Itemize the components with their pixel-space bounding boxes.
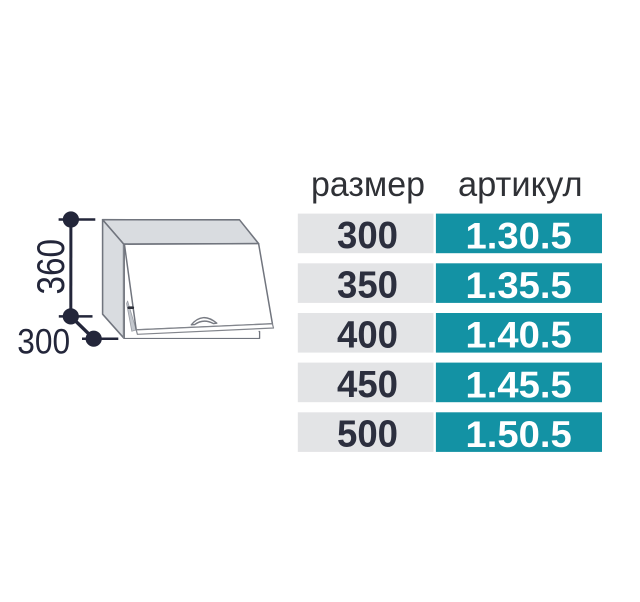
svg-text:1.45.5: 1.45.5: [466, 364, 572, 405]
svg-text:300: 300: [337, 215, 398, 257]
svg-text:артикул: артикул: [458, 165, 583, 204]
svg-text:500: 500: [337, 414, 398, 456]
svg-text:400: 400: [337, 314, 398, 356]
svg-text:360: 360: [29, 239, 73, 295]
svg-text:450: 450: [337, 364, 398, 406]
svg-text:1.40.5: 1.40.5: [466, 315, 572, 356]
svg-text:размер: размер: [311, 165, 425, 204]
svg-text:1.35.5: 1.35.5: [466, 265, 572, 306]
svg-text:300: 300: [17, 322, 70, 362]
svg-text:350: 350: [337, 265, 398, 307]
svg-text:1.30.5: 1.30.5: [466, 215, 572, 256]
svg-text:1.50.5: 1.50.5: [466, 414, 572, 455]
